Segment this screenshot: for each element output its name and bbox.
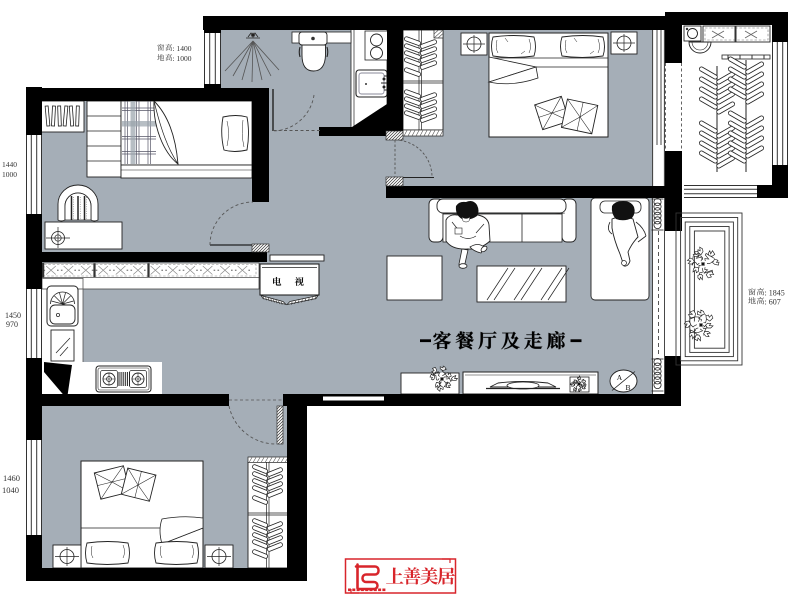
svg-text:: 1400: : 1400	[173, 44, 192, 53]
svg-text:A: A	[617, 373, 623, 382]
svg-text:: 1440: : 1440	[0, 160, 17, 169]
svg-text:970: 970	[6, 320, 18, 329]
svg-text:B: B	[625, 383, 630, 392]
svg-text:: 607: : 607	[765, 298, 781, 307]
svg-text:: 1000: : 1000	[173, 54, 192, 63]
svg-text:: 1845: : 1845	[765, 289, 785, 298]
svg-text:: 1000: : 1000	[0, 170, 17, 179]
svg-text:1040: 1040	[2, 485, 19, 495]
svg-text:1450: 1450	[5, 311, 21, 320]
svg-text:1460: 1460	[3, 473, 20, 483]
